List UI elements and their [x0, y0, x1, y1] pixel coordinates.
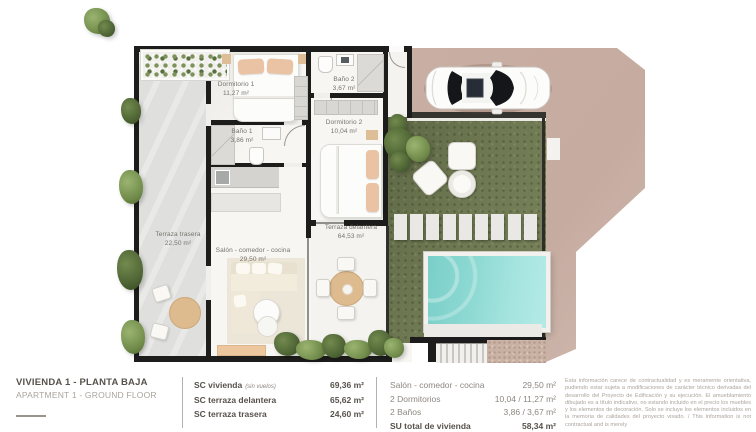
- table-row: SC terraza delantera 65,62 m²: [194, 395, 364, 405]
- plant: [117, 250, 143, 290]
- room-name: Baño 2: [318, 76, 370, 85]
- su-value: 10,04 / 11,27 m²: [495, 394, 556, 404]
- room-label-dormitorio-2: Dormitorio 2 10,04 m²: [314, 119, 374, 136]
- sc-label: SC terraza delantera: [194, 395, 276, 405]
- project-subtitle: APARTMENT 1 - GROUND FLOOR: [16, 390, 174, 400]
- room-area: 11,27 m²: [203, 90, 269, 99]
- room-name: Terraza trasera: [146, 231, 210, 240]
- footer-divider: [376, 377, 377, 428]
- wardrobe: [314, 100, 378, 115]
- garden-side-table: [448, 170, 476, 198]
- table-row: Salón - comedor - cocina 29,50 m²: [390, 380, 556, 390]
- wall-right-upper: [407, 46, 412, 118]
- terrace-table: [169, 297, 201, 329]
- stepping-stone: [475, 214, 488, 240]
- tv-bench: [217, 345, 266, 356]
- pillow: [267, 58, 294, 74]
- nightstand: [222, 54, 231, 64]
- room-area: 22,50 m²: [146, 240, 210, 249]
- pool-walkway: [424, 324, 542, 337]
- dining-chair: [316, 279, 330, 297]
- glass-wall-living: [307, 238, 309, 344]
- room-label-salon: Salón - comedor - cocina 29,50 m²: [212, 247, 294, 264]
- room-area: 29,50 m²: [212, 256, 294, 265]
- dining-chair: [337, 306, 355, 320]
- nightstand: [298, 54, 306, 64]
- room-name: Dormitorio 1: [203, 81, 269, 90]
- sofa-cushion: [252, 263, 266, 274]
- garden-gate: [547, 138, 560, 160]
- garden-tree: [406, 136, 430, 162]
- wall-left: [134, 46, 139, 362]
- sink-basin: [341, 57, 349, 63]
- stepping-stone: [508, 214, 521, 240]
- stepping-stone: [394, 214, 407, 240]
- gravel-patch: [487, 340, 546, 363]
- sofa-cushion: [233, 294, 247, 308]
- garden-armchair: [448, 142, 476, 170]
- garden-wall-stub: [428, 343, 436, 362]
- room-name: Dormitorio 2: [314, 119, 374, 128]
- sofa-cushion: [267, 262, 282, 274]
- toilet: [318, 56, 333, 73]
- wall-bedroom2-right: [383, 93, 388, 226]
- sc-value: 24,60 m²: [330, 409, 364, 419]
- stepping-stone: [443, 214, 456, 240]
- table-row: SC terraza trasera 24,60 m²: [194, 409, 364, 419]
- dining-table: [329, 271, 364, 306]
- stepping-stone: [426, 214, 439, 240]
- stepping-stone: [491, 214, 504, 240]
- stepping-stone: [524, 214, 537, 240]
- footer-disclaimer: Esta información carece de contractualid…: [565, 378, 751, 429]
- room-area: 3,67 m²: [318, 85, 370, 94]
- plant: [119, 170, 143, 204]
- sc-note: (sin vuelos): [245, 384, 276, 390]
- plate: [342, 284, 353, 295]
- table-row: 2 Baños 3,86 / 3,67 m²: [390, 407, 556, 417]
- table-row-total: SU total de vivienda 58,34 m²: [390, 421, 556, 431]
- sc-label: SC terraza trasera: [194, 409, 267, 419]
- sc-value: 69,36 m²: [330, 380, 364, 390]
- kitchen-counter: [211, 167, 279, 188]
- room-name: Salón - comedor - cocina: [212, 247, 294, 256]
- plant: [121, 98, 141, 124]
- su-value: 58,34 m²: [522, 421, 556, 431]
- sofa-cushion: [236, 263, 250, 274]
- room-area: 3,86 m²: [212, 137, 272, 146]
- garden-tree: [390, 152, 410, 172]
- footer-rule: [16, 415, 46, 417]
- footer-divider: [182, 377, 183, 428]
- wall-center: [306, 46, 311, 226]
- su-label: 2 Baños: [390, 407, 421, 417]
- su-label: SU total de vivienda: [390, 421, 471, 431]
- dining-chair: [337, 257, 355, 271]
- su-label: 2 Dormitorios: [390, 394, 441, 404]
- room-name: Terraza delantera: [314, 224, 388, 233]
- project-title: VIVIENDA 1 - PLANTA BAJA: [16, 377, 174, 388]
- wardrobe: [294, 76, 308, 120]
- sc-value: 65,62 m²: [330, 395, 364, 405]
- coffee-table-small: [257, 316, 278, 337]
- sofa-seat: [231, 274, 297, 291]
- pillow: [238, 58, 265, 74]
- room-name: Baño 1: [212, 128, 272, 137]
- wall-stub: [306, 226, 311, 238]
- duvet-fold: [336, 146, 339, 214]
- room-label-bano-1: Baño 1 3,86 m²: [212, 128, 272, 145]
- su-value: 3,86 / 3,67 m²: [504, 407, 556, 417]
- plant: [121, 320, 145, 354]
- door-opening: [206, 266, 211, 300]
- room-label-terraza-delantera: Terraza delantera 64,53 m²: [314, 224, 388, 241]
- kitchen-island: [211, 193, 281, 212]
- plant: [98, 20, 115, 37]
- room-label-dormitorio-1: Dormitorio 1 11,27 m²: [203, 81, 269, 98]
- pillow: [366, 150, 379, 179]
- table-row: SC vivienda(sin vuelos) 69,36 m²: [194, 380, 364, 390]
- room-area: 64,53 m²: [314, 233, 388, 242]
- stepping-stone: [410, 214, 423, 240]
- su-value: 29,50 m²: [522, 380, 556, 390]
- hedge-bush: [384, 338, 404, 358]
- floor-plan-page: Dormitorio 1 11,27 m² Baño 1 3,86 m² Bañ…: [0, 0, 756, 432]
- footer-project-block: VIVIENDA 1 - PLANTA BAJA APARTMENT 1 - G…: [16, 377, 174, 417]
- stepping-stone: [459, 214, 472, 240]
- planter-box: [141, 50, 229, 80]
- pool: [424, 252, 550, 332]
- dining-chair: [363, 279, 377, 297]
- louver-deck: [436, 343, 487, 363]
- door-opening: [284, 163, 302, 167]
- table-row: 2 Dormitorios 10,04 / 11,27 m²: [390, 394, 556, 404]
- sc-label: SC vivienda: [194, 380, 242, 390]
- kitchen-sink: [215, 170, 230, 185]
- room-area: 10,04 m²: [314, 128, 374, 137]
- car-top-view: [422, 60, 554, 116]
- footer-su-table: Salón - comedor - cocina 29,50 m² 2 Dorm…: [390, 380, 556, 432]
- garden-fence-edge: [407, 118, 546, 121]
- room-label-bano-2: Baño 2 3,67 m²: [318, 76, 370, 93]
- hedge-bush: [322, 334, 346, 358]
- toilet: [249, 147, 264, 165]
- footer-sc-table: SC vivienda(sin vuelos) 69,36 m² SC terr…: [194, 380, 364, 424]
- pillow: [366, 183, 379, 212]
- su-label: Salón - comedor - cocina: [390, 380, 485, 390]
- sink: [336, 54, 354, 66]
- pool-water: [428, 256, 546, 328]
- room-label-terraza-trasera: Terraza trasera 22,50 m²: [146, 231, 210, 248]
